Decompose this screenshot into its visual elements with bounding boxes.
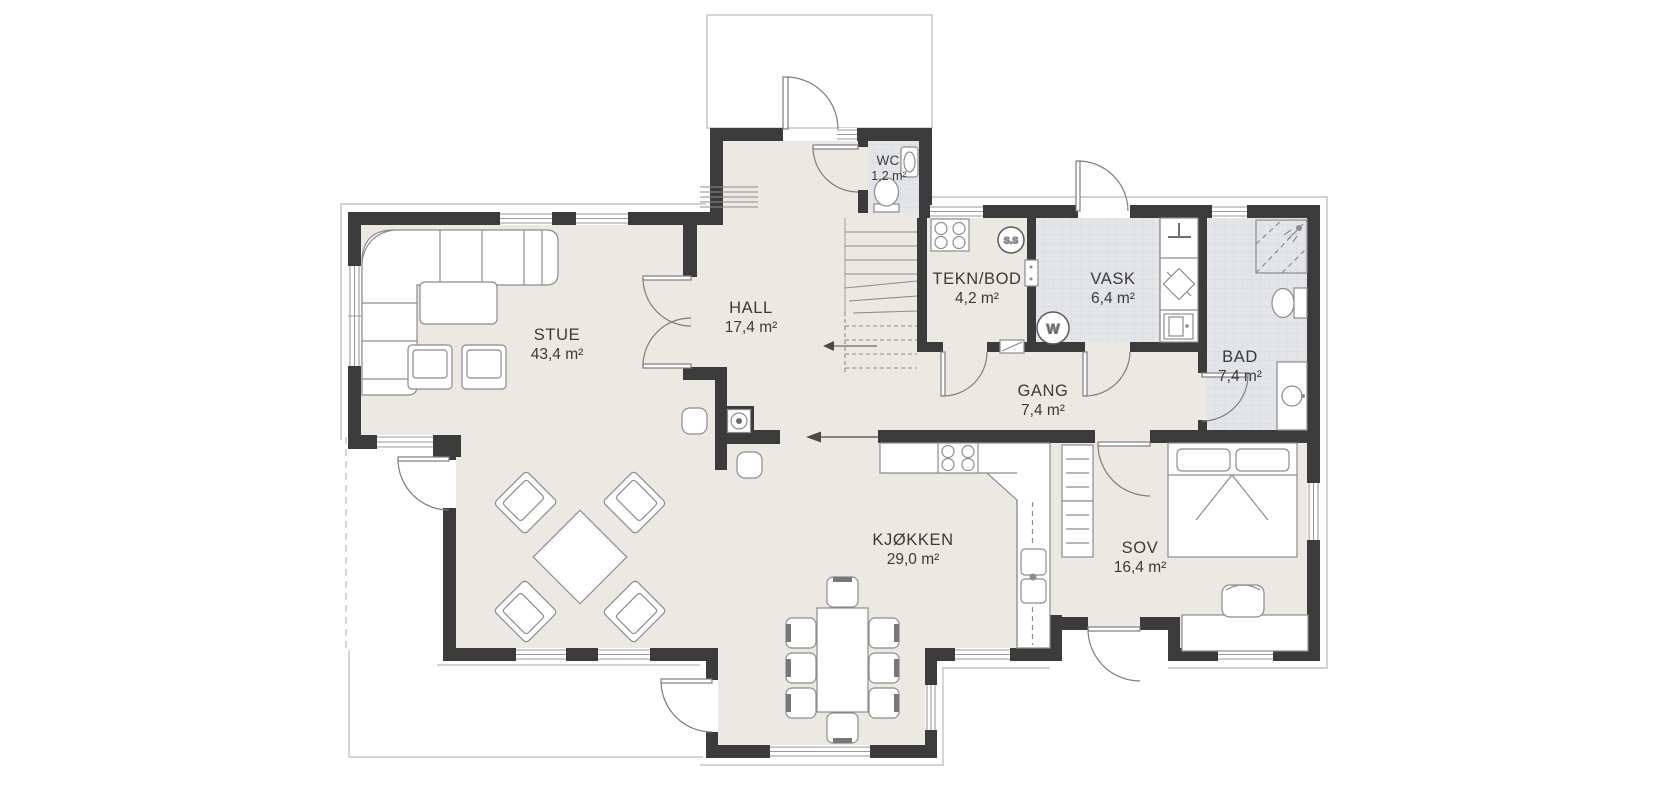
label-hall-name: HALL <box>729 299 773 317</box>
dining-chair <box>827 713 858 743</box>
label-bad-area: 7,4 m² <box>1218 368 1262 385</box>
ss-circle: S.S <box>998 227 1024 253</box>
label-gang-area: 7,4 m² <box>1021 402 1065 419</box>
window <box>837 128 857 141</box>
label-hall-area: 17,4 m² <box>725 319 778 336</box>
label-gang-name: GANG <box>1018 382 1069 400</box>
window <box>930 205 983 218</box>
label-teknbod-area: 4,2 m² <box>955 290 999 307</box>
window <box>1212 205 1247 218</box>
w-symbol: W <box>1046 321 1060 337</box>
wardrobe <box>1062 445 1093 501</box>
window <box>348 266 361 366</box>
window <box>925 685 937 730</box>
double-bed <box>1168 443 1297 557</box>
stool <box>737 452 762 478</box>
label-stue-name: STUE <box>534 326 580 344</box>
dining-chair <box>786 653 816 683</box>
window <box>955 648 1010 661</box>
wall-vent <box>1000 340 1024 353</box>
label-wc-area: 1,2 m² <box>871 169 906 183</box>
dining-chair <box>827 577 858 607</box>
window <box>576 212 628 225</box>
window <box>770 745 870 758</box>
label-sov-name: SOV <box>1122 539 1159 557</box>
label-kjokken-name: KJØKKEN <box>872 531 953 549</box>
bathroom-vanity <box>1277 362 1307 430</box>
window <box>377 435 433 449</box>
desk <box>1182 615 1308 651</box>
label-vask-name: VASK <box>1090 270 1135 288</box>
dining-table <box>817 608 868 712</box>
terrace-door-west <box>398 457 449 510</box>
label-sov-area: 16,4 m² <box>1114 559 1167 576</box>
window <box>1307 483 1320 540</box>
wall-panel <box>1025 260 1038 286</box>
south-exterior-door <box>1088 627 1140 681</box>
label-stue-area: 43,4 m² <box>531 346 584 363</box>
label-teknbod-name: TEKN/BOD <box>932 270 1021 288</box>
window <box>500 212 552 225</box>
stove <box>938 443 978 473</box>
label-kjokken-area: 29,0 m² <box>887 551 940 568</box>
wc-toilet <box>874 178 899 212</box>
dining-chair <box>786 618 816 648</box>
wardrobe <box>1062 501 1093 557</box>
floor-plan-page: W S.S STUE 43,4 m² HALL 17,4 m² WC 1,2 m… <box>0 0 1670 800</box>
toilet <box>1272 288 1307 318</box>
armchair <box>408 345 452 389</box>
coffee-table <box>420 282 497 324</box>
label-wc-name: WC <box>876 153 899 168</box>
label-vask-area: 6,4 m² <box>1091 290 1135 307</box>
dining-chair <box>869 653 899 683</box>
dining-chair <box>869 688 899 718</box>
bay-terrace-door <box>661 679 712 732</box>
armchair <box>462 345 506 389</box>
front-door <box>783 77 838 129</box>
small-stove-unit <box>931 219 969 251</box>
dining-chair <box>786 688 816 718</box>
fireplace-chimney <box>724 406 754 436</box>
machine-w-circle: W <box>1037 312 1069 344</box>
desk-chair <box>1222 585 1264 617</box>
ss-symbol: S.S <box>1004 236 1019 246</box>
label-bad-name: BAD <box>1222 348 1258 366</box>
window <box>598 648 650 661</box>
dining-chair <box>869 618 899 648</box>
porch-outline <box>707 15 932 128</box>
stool <box>682 408 707 434</box>
vask-exterior-door <box>1076 161 1128 211</box>
window <box>516 648 566 661</box>
floor-plan-drawing: W S.S STUE 43,4 m² HALL 17,4 m² WC 1,2 m… <box>0 0 1670 800</box>
washing-machine <box>1164 314 1193 339</box>
